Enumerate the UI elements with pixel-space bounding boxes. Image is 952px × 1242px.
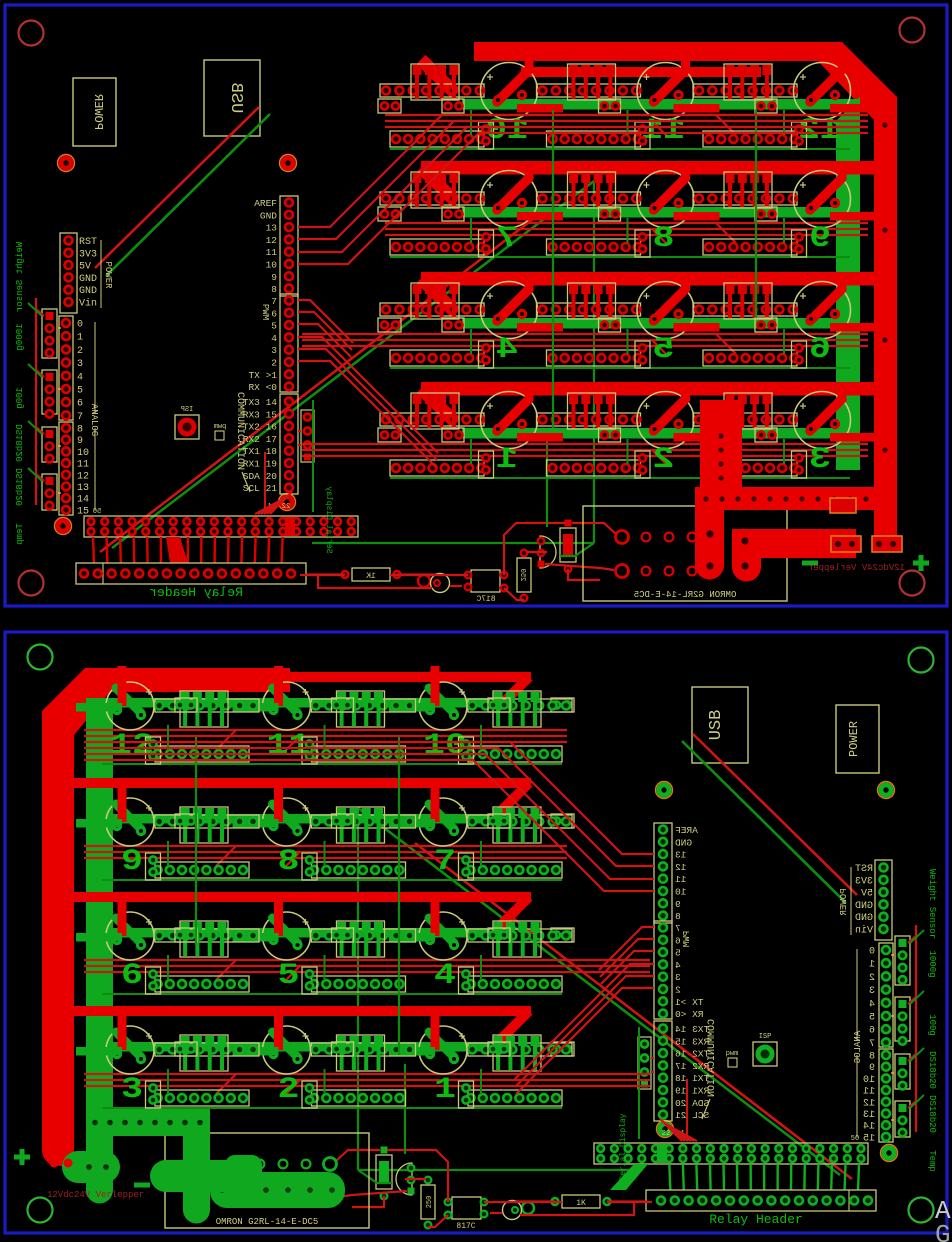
svg-text:9: 9 <box>869 1063 875 1074</box>
svg-text:TX1 18: TX1 18 <box>675 1073 710 1084</box>
svg-text:100g: 100g <box>15 387 25 409</box>
svg-text:ANALOG: ANALOG <box>89 404 99 436</box>
svg-text:11: 11 <box>642 114 686 148</box>
svg-text:14: 14 <box>863 1122 875 1133</box>
svg-text:12: 12 <box>675 862 687 873</box>
svg-text:50: 50 <box>851 1135 859 1143</box>
svg-text:12Vdc24V Verlepper: 12Vdc24V Verlepper <box>808 563 905 573</box>
svg-text:1: 1 <box>434 1073 456 1107</box>
svg-text:GND: GND <box>855 913 873 924</box>
svg-text:RX <0: RX <0 <box>248 382 277 393</box>
svg-text:Vin: Vin <box>79 298 97 310</box>
svg-text:ISP: ISP <box>181 406 194 414</box>
svg-text:USB: USB <box>707 710 726 741</box>
svg-text:2: 2 <box>675 985 681 996</box>
svg-text:TX2 16: TX2 16 <box>675 1049 710 1060</box>
svg-text:0: 0 <box>869 947 875 958</box>
svg-text:RX1 19: RX1 19 <box>675 1086 710 1097</box>
svg-text:RX2 17: RX2 17 <box>675 1061 709 1072</box>
svg-text:DS18b20: DS18b20 <box>927 1051 937 1089</box>
svg-text:13: 13 <box>266 223 278 234</box>
svg-text:4: 4 <box>496 333 518 367</box>
svg-text:Relay Header: Relay Header <box>709 1212 803 1227</box>
svg-text:GND: GND <box>260 210 277 221</box>
svg-text:TX >1: TX >1 <box>248 370 277 381</box>
svg-text:10: 10 <box>77 448 89 459</box>
svg-text:8: 8 <box>77 425 83 436</box>
svg-text:10: 10 <box>423 729 467 763</box>
svg-text:4: 4 <box>77 372 83 383</box>
svg-text:5: 5 <box>675 948 681 959</box>
svg-text:8: 8 <box>271 284 277 295</box>
svg-text:GND: GND <box>675 837 692 848</box>
svg-text:5: 5 <box>271 321 277 332</box>
svg-text:SDA 20: SDA 20 <box>243 471 278 482</box>
svg-text:PWM: PWM <box>260 304 270 320</box>
svg-text:COMMUNICATION: COMMUNICATION <box>707 1019 718 1097</box>
svg-text:1: 1 <box>496 443 518 477</box>
svg-text:DS18b20: DS18b20 <box>15 468 25 506</box>
svg-text:7: 7 <box>77 412 83 423</box>
svg-text:OMRON G2RL-14-E-DC5: OMRON G2RL-14-E-DC5 <box>634 590 737 600</box>
svg-text:10: 10 <box>485 114 529 148</box>
svg-text:TX3 14: TX3 14 <box>243 397 278 408</box>
svg-text:RST: RST <box>855 864 873 875</box>
svg-text:817C: 817C <box>456 1222 475 1231</box>
svg-text:3: 3 <box>809 443 831 477</box>
svg-text:3: 3 <box>675 972 681 983</box>
svg-text:3: 3 <box>271 345 277 356</box>
svg-text:3: 3 <box>77 359 83 370</box>
svg-text:10: 10 <box>675 887 687 898</box>
svg-text:ANALOG: ANALOG <box>853 1031 863 1063</box>
svg-text:2: 2 <box>653 443 675 477</box>
svg-text:Serial Display: Serial Display <box>619 1113 628 1180</box>
svg-text:7: 7 <box>496 222 518 256</box>
svg-text:Temp: Temp <box>927 1150 937 1172</box>
svg-text:4: 4 <box>869 999 875 1010</box>
svg-text:OMRON G2RL-14-E-DC5: OMRON G2RL-14-E-DC5 <box>216 1217 319 1227</box>
svg-text:TX1 18: TX1 18 <box>243 446 278 457</box>
svg-text:Temp: Temp <box>15 523 25 545</box>
svg-text:817C: 817C <box>476 595 495 604</box>
svg-text:250: 250 <box>426 1196 434 1209</box>
svg-text:POWER: POWER <box>839 888 849 916</box>
svg-text:12: 12 <box>863 1098 875 1109</box>
svg-text:RX <0: RX <0 <box>675 1009 704 1020</box>
svg-text:9: 9 <box>77 436 83 447</box>
svg-text:8: 8 <box>869 1052 875 1063</box>
svg-text:6: 6 <box>271 308 277 319</box>
svg-text:11: 11 <box>675 874 687 885</box>
svg-text:0: 0 <box>77 320 83 331</box>
svg-text:11: 11 <box>77 460 89 471</box>
svg-text:22: 22 <box>282 503 290 511</box>
svg-text:5: 5 <box>77 386 83 397</box>
svg-text:3V3: 3V3 <box>79 249 97 260</box>
svg-text:8: 8 <box>278 845 300 879</box>
svg-text:GND: GND <box>79 286 97 297</box>
svg-text:9: 9 <box>121 845 143 879</box>
svg-text:3: 3 <box>121 1073 143 1107</box>
svg-text:PWM: PWM <box>682 931 692 947</box>
svg-text:2: 2 <box>278 1073 300 1107</box>
svg-text:Weight Sensor: Weight Sensor <box>15 242 25 312</box>
svg-text:6: 6 <box>675 935 681 946</box>
svg-text:12: 12 <box>266 235 278 246</box>
svg-text:1K: 1K <box>366 572 376 581</box>
svg-text:10: 10 <box>863 1075 875 1086</box>
svg-text:8: 8 <box>653 222 675 256</box>
svg-text:Relay Header: Relay Header <box>149 585 243 600</box>
svg-text:22: 22 <box>662 1130 670 1138</box>
svg-text:POWER: POWER <box>91 94 105 130</box>
svg-text:11: 11 <box>863 1087 875 1098</box>
svg-text:SDA 20: SDA 20 <box>675 1098 710 1109</box>
svg-text:12: 12 <box>798 114 842 148</box>
svg-text:RX2 17: RX2 17 <box>243 434 277 445</box>
svg-text:GND: GND <box>79 274 97 285</box>
svg-text:5V: 5V <box>861 889 873 900</box>
svg-text:pwm: pwm <box>214 423 227 431</box>
svg-text:5: 5 <box>653 333 675 367</box>
svg-text:RX1 19: RX1 19 <box>243 459 278 470</box>
svg-text:13: 13 <box>863 1110 875 1121</box>
svg-text:12Vdc24V Verlepper: 12Vdc24V Verlepper <box>47 1190 144 1200</box>
svg-text:TX3 14: TX3 14 <box>675 1024 710 1035</box>
svg-text:USB: USB <box>226 83 245 114</box>
svg-text:COMMUNICATION: COMMUNICATION <box>234 392 245 470</box>
svg-text:14: 14 <box>77 495 89 506</box>
svg-text:Vin: Vin <box>855 925 873 937</box>
svg-text:8: 8 <box>675 911 681 922</box>
svg-text:9: 9 <box>809 222 831 256</box>
svg-text:TX >1: TX >1 <box>675 997 704 1008</box>
svg-text:DS18b20: DS18b20 <box>15 424 25 462</box>
svg-text:TX2 16: TX2 16 <box>243 422 278 433</box>
svg-text:6: 6 <box>121 959 143 993</box>
svg-text:12: 12 <box>110 729 154 763</box>
svg-text:7: 7 <box>675 923 681 934</box>
svg-text:11: 11 <box>267 729 311 763</box>
svg-text:1000g: 1000g <box>15 323 25 350</box>
svg-text:RX3 15: RX3 15 <box>675 1036 710 1047</box>
svg-text:RX3 15: RX3 15 <box>243 409 278 420</box>
svg-text:3V3: 3V3 <box>855 876 873 887</box>
svg-text:Weight Sensor: Weight Sensor <box>927 869 937 939</box>
svg-text:1: 1 <box>869 960 875 971</box>
svg-text:13: 13 <box>77 483 89 494</box>
svg-text:GND: GND <box>855 901 873 912</box>
svg-text:POWER: POWER <box>847 721 861 757</box>
svg-text:5: 5 <box>869 1013 875 1024</box>
svg-text:pwm: pwm <box>726 1050 739 1058</box>
svg-text:SCL 21: SCL 21 <box>243 483 278 494</box>
svg-text:2: 2 <box>869 973 875 984</box>
svg-text:7: 7 <box>271 296 277 307</box>
svg-text:6: 6 <box>809 333 831 367</box>
svg-text:RST: RST <box>79 237 97 248</box>
svg-text:10: 10 <box>266 260 278 271</box>
svg-text:100g: 100g <box>927 1014 937 1036</box>
svg-text:1K: 1K <box>576 1199 586 1208</box>
svg-text:2: 2 <box>77 346 83 357</box>
svg-text:4: 4 <box>434 959 456 993</box>
svg-text:12: 12 <box>77 471 89 482</box>
svg-text:5V: 5V <box>79 262 91 273</box>
svg-text:2: 2 <box>271 358 277 369</box>
svg-text:50: 50 <box>93 508 101 516</box>
svg-text:250: 250 <box>518 569 526 582</box>
svg-text:Serial Display: Serial Display <box>324 486 333 553</box>
svg-text:AREF: AREF <box>675 825 698 836</box>
svg-text:3: 3 <box>869 986 875 997</box>
svg-text:6: 6 <box>869 1026 875 1037</box>
svg-text:9: 9 <box>675 899 681 910</box>
svg-text:11: 11 <box>266 247 278 258</box>
svg-text:1: 1 <box>77 333 83 344</box>
svg-text:1000g: 1000g <box>927 950 937 977</box>
svg-text:SCL 21: SCL 21 <box>675 1110 710 1121</box>
svg-text:POWER: POWER <box>103 261 113 289</box>
svg-text:13: 13 <box>675 850 687 861</box>
svg-text:6: 6 <box>77 399 83 410</box>
svg-text:9: 9 <box>271 272 277 283</box>
svg-text:Go: Go <box>935 1220 952 1242</box>
svg-text:DS18b20: DS18b20 <box>927 1095 937 1133</box>
svg-text:4: 4 <box>271 333 277 344</box>
svg-text:7: 7 <box>434 845 456 879</box>
svg-text:AREF: AREF <box>254 198 277 209</box>
svg-text:5: 5 <box>278 959 300 993</box>
svg-text:ISP: ISP <box>759 1033 772 1041</box>
svg-text:4: 4 <box>675 960 681 971</box>
svg-text:7: 7 <box>869 1039 875 1050</box>
